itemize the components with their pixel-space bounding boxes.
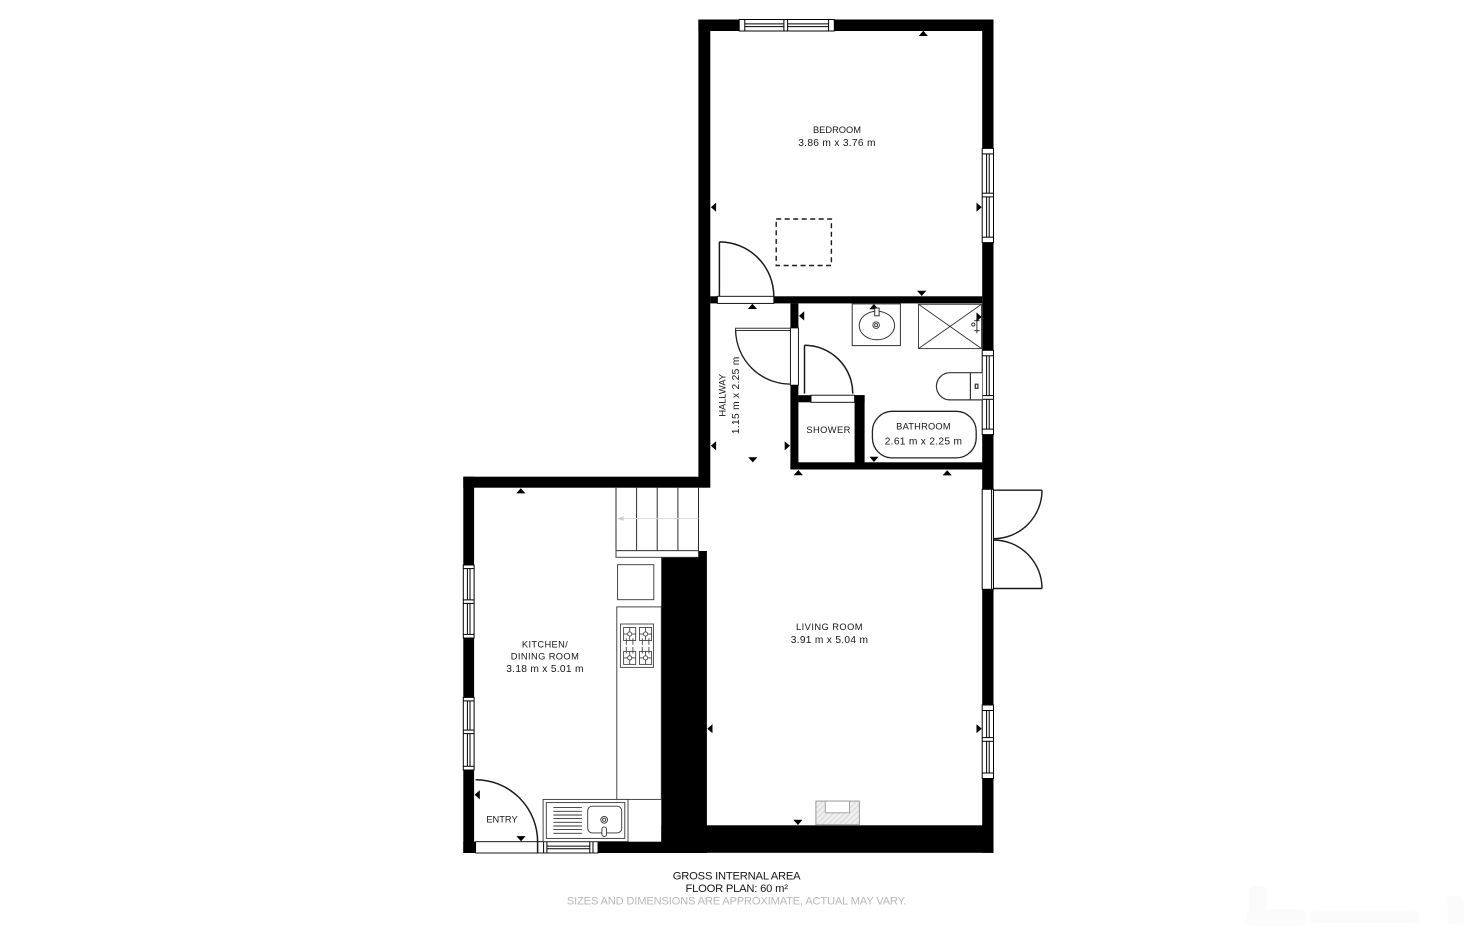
svg-text:FLOOR PLAN: 60 m²: FLOOR PLAN: 60 m² [685, 883, 788, 895]
svg-text:1.15 m x 2.25 m: 1.15 m x 2.25 m [731, 357, 742, 435]
svg-text:KITCHEN/: KITCHEN/ [522, 640, 568, 650]
svg-text:HALLWAY: HALLWAY [718, 374, 728, 417]
svg-text:2.61 m x 2.25 m: 2.61 m x 2.25 m [885, 436, 963, 447]
svg-text:BATHROOM: BATHROOM [896, 422, 951, 432]
svg-text:ENTRY: ENTRY [486, 815, 517, 825]
svg-text:DINING ROOM: DINING ROOM [511, 652, 579, 662]
svg-text:SHOWER: SHOWER [806, 425, 851, 435]
svg-text:3.91 m x 5.04 m: 3.91 m x 5.04 m [791, 635, 869, 646]
svg-text:BEDROOM: BEDROOM [813, 125, 861, 135]
svg-text:SIZES AND DIMENSIONS ARE APPRO: SIZES AND DIMENSIONS ARE APPROXIMATE, AC… [567, 896, 907, 908]
svg-text:LIVING ROOM: LIVING ROOM [796, 622, 863, 632]
svg-text:3.86 m x 3.76 m: 3.86 m x 3.76 m [798, 138, 876, 149]
svg-text:GROSS INTERNAL AREA: GROSS INTERNAL AREA [673, 870, 801, 882]
svg-text:3.18 m x 5.01 m: 3.18 m x 5.01 m [506, 664, 584, 675]
